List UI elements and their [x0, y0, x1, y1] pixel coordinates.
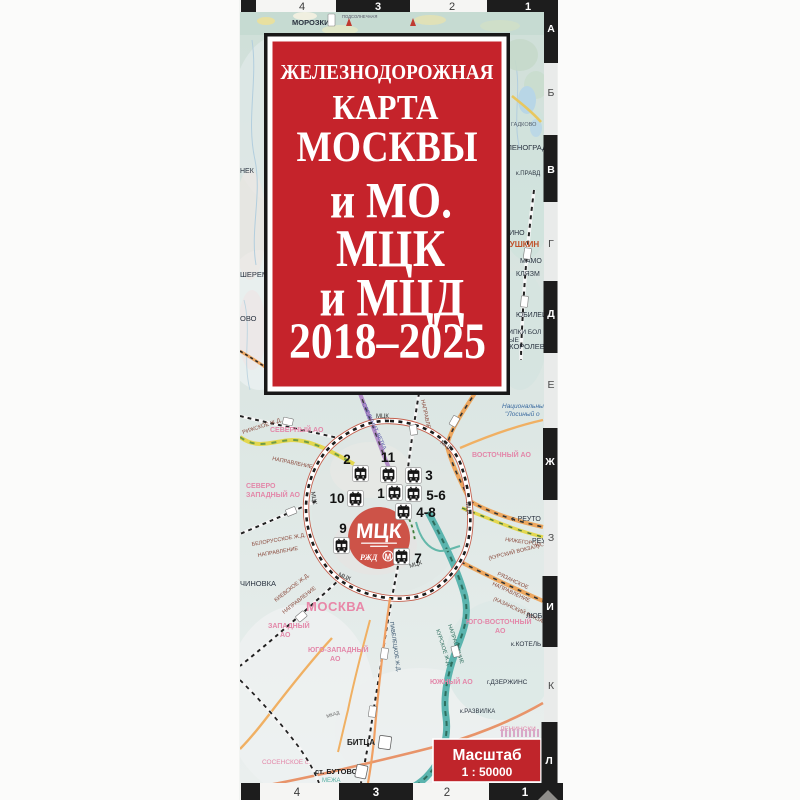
svg-text:МЦК: МЦК: [464, 502, 471, 516]
svg-text:КЛЯЗМ: КЛЯЗМ: [516, 271, 540, 278]
svg-text:10: 10: [329, 491, 344, 506]
svg-text:Д: Д: [547, 308, 555, 320]
svg-text:Г: Г: [548, 238, 554, 250]
svg-text:1: 1: [525, 1, 531, 13]
svg-text:ЮГО-ЗАПАДНЫЙ: ЮГО-ЗАПАДНЫЙ: [308, 645, 369, 654]
svg-text:Е: Е: [547, 379, 554, 391]
svg-text:МЦК: МЦК: [355, 520, 402, 543]
svg-text:9: 9: [339, 521, 347, 536]
svg-text:ЮЖНЫЙ АО: ЮЖНЫЙ АО: [430, 677, 473, 686]
svg-text:СЕВЕРНЫЙ АО: СЕВЕРНЫЙ АО: [270, 425, 324, 434]
svg-text:ЗАПАДНЫЙ: ЗАПАДНЫЙ: [268, 621, 310, 630]
svg-text:ЮБИЛЕЙ: ЮБИЛЕЙ: [516, 310, 547, 319]
svg-text:ЮГО-ВОСТОЧНЫЙ: ЮГО-ВОСТОЧНЫЙ: [466, 617, 531, 626]
svg-text:МОСКВЫ: МОСКВЫ: [297, 124, 478, 171]
svg-text:. КОРОЛЕВ: . КОРОЛЕВ: [505, 342, 545, 351]
svg-text:СОСЕНСКОЕ с.: СОСЕНСКОЕ с.: [262, 759, 310, 766]
svg-text:ЛЮБ: ЛЮБ: [526, 613, 543, 620]
svg-text:1: 1: [377, 486, 385, 501]
svg-text:ВОСТОЧНЫЙ АО: ВОСТОЧНЫЙ АО: [472, 450, 532, 459]
svg-text:ОВО: ОВО: [240, 314, 257, 323]
svg-text:Б: Б: [548, 87, 555, 99]
svg-text:к.КОТЕЛЬ: к.КОТЕЛЬ: [511, 641, 541, 648]
svg-text:НЕК: НЕК: [240, 168, 255, 175]
svg-text:Масштаб: Масштаб: [452, 747, 521, 764]
svg-text:ЖЕЛЕЗНОДОРОЖНАЯ: ЖЕЛЕЗНОДОРОЖНАЯ: [281, 60, 494, 84]
svg-text:2: 2: [343, 452, 351, 467]
svg-text:З: З: [548, 532, 554, 544]
svg-text:7: 7: [414, 551, 422, 566]
svg-text:ст. БУТОВО: ст. БУТОВО: [315, 767, 358, 776]
svg-text:Ж: Ж: [544, 456, 555, 468]
svg-text:2: 2: [449, 1, 455, 13]
svg-text:2018–2025: 2018–2025: [289, 314, 486, 370]
svg-text:3: 3: [373, 787, 379, 799]
svg-text:К: К: [548, 680, 555, 692]
svg-text:БИТЦА: БИТЦА: [347, 738, 375, 747]
svg-text:АО: АО: [280, 632, 291, 639]
svg-text:1: 1: [522, 787, 529, 799]
svg-text:ЗАПАДНЫЙ АО: ЗАПАДНЫЙ АО: [246, 490, 301, 499]
svg-text:МОСКВА: МОСКВА: [306, 599, 366, 614]
svg-text:ЧИНОВКА: ЧИНОВКА: [240, 579, 276, 588]
svg-text:АО: АО: [495, 628, 506, 635]
svg-text:МАМО: МАМО: [520, 258, 542, 265]
svg-text:11: 11: [381, 450, 396, 465]
svg-text:РЖД: РЖД: [360, 553, 378, 562]
svg-text:МЦК: МЦК: [376, 414, 389, 420]
svg-text:Л: Л: [545, 755, 552, 767]
svg-text:к.ПРАВД: к.ПРАВД: [516, 171, 540, 177]
svg-text:В: В: [547, 164, 555, 176]
svg-text:М: М: [385, 553, 392, 562]
svg-text:г.ДЗЕРЖИНС: г.ДЗЕРЖИНС: [487, 679, 528, 686]
svg-text:3: 3: [375, 1, 381, 13]
svg-text:АО: АО: [330, 656, 341, 663]
svg-text:4: 4: [299, 1, 305, 13]
svg-text:МОРОЗКИ: МОРОЗКИ: [292, 18, 330, 27]
svg-text:"Лосиный о: "Лосиный о: [505, 410, 540, 418]
svg-text:ШЕРЕМ: ШЕРЕМ: [240, 270, 268, 279]
svg-text:3: 3: [425, 468, 433, 483]
svg-text:1 : 50000: 1 : 50000: [462, 765, 513, 779]
svg-text:ПОДСОЛНЕЧНАЯ: ПОДСОЛНЕЧНАЯ: [342, 14, 377, 19]
svg-text:4-8: 4-8: [416, 505, 436, 520]
svg-text:ГАДКОВО: ГАДКОВО: [511, 122, 537, 128]
svg-text:А: А: [547, 23, 555, 35]
svg-text:СЕВЕРО: СЕВЕРО: [246, 483, 276, 490]
svg-text:Национальный: Национальный: [502, 402, 548, 410]
svg-text:КАРТА: КАРТА: [333, 88, 440, 127]
svg-text:г. РЕУТО: г. РЕУТО: [512, 516, 541, 523]
svg-text:И: И: [546, 601, 554, 613]
svg-text:к.РАЗВИЛКА: к.РАЗВИЛКА: [460, 709, 495, 715]
svg-text:4: 4: [294, 787, 301, 799]
svg-text:2: 2: [444, 787, 450, 799]
svg-text:5-6: 5-6: [426, 488, 446, 503]
